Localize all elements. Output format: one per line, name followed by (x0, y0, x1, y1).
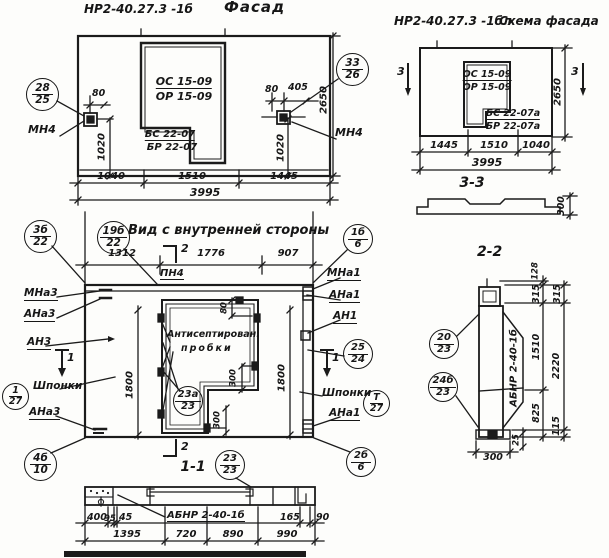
fitting-label-ana3-top: АНа3 (24, 309, 55, 322)
balloon-den: 23 (179, 402, 197, 413)
detail-balloon-25-24: 25 24 (343, 339, 373, 369)
dim-80-right: 80 (265, 85, 278, 95)
section-3-mark-right: 3 (571, 66, 579, 78)
dim-315-a: 315 (532, 284, 542, 304)
detail-balloon-1-27: 1 27 (2, 383, 29, 410)
detail-balloon-4b-10: 4б 10 (24, 448, 57, 481)
fitting-label-an1: АН1 (333, 311, 357, 324)
plugs-note-line2: пробки (181, 344, 233, 354)
balloon-num: 20 (434, 333, 454, 345)
dim-95: 95 (104, 515, 116, 524)
dim-128: 128 (531, 262, 540, 280)
scheme-door-mark-br: БР 22-07а (486, 122, 540, 132)
dim-1776: 1776 (197, 248, 225, 259)
detail-balloon-19b-22: 19б 22 (97, 221, 130, 254)
section-2-2-title: 2-2 (477, 245, 502, 260)
dim-90: 90 (316, 513, 329, 523)
scheme-code: НР2-40.27.3 -1бл (394, 15, 512, 28)
section-1-mark-right: 1 (332, 352, 340, 364)
dim-300-scheme: 300 (557, 196, 567, 216)
dim-1040: 1040 (97, 171, 125, 182)
dim-720: 720 (176, 529, 197, 540)
dim-405: 405 (288, 83, 308, 93)
balloon-num: 23 (220, 454, 240, 466)
dim-990: 990 (277, 529, 298, 540)
dim-825: 825 (532, 403, 542, 423)
detail-balloon-3b-8: 3б 22 (24, 220, 57, 253)
dim-1020-left: 1020 (97, 133, 108, 161)
balloon-den: 27 (7, 397, 24, 407)
panel-mark-abnr-11: АБНР 2-40-1б (167, 510, 245, 522)
dim-1445: 1445 (270, 171, 298, 182)
scheme-door-mark-bs: БС 22-07а (486, 109, 540, 120)
detail-balloon-2b-6: 2б 6 (346, 447, 376, 477)
balloon-den: 22 (104, 238, 123, 249)
dim-25: 25 (512, 434, 521, 446)
dim-2650-scheme: 2650 (553, 78, 564, 106)
dim-45: 45 (119, 513, 132, 523)
dim-1510: 1510 (178, 171, 206, 182)
section-2-mark-bottom: 2 (181, 441, 189, 453)
facade-window-mark-os: ОС 15-09 (156, 76, 212, 89)
detail-balloon-23a-23: 23а 23 (173, 386, 203, 416)
balloon-den: 23 (221, 466, 239, 477)
detail-balloon-28-25: 28 25 (26, 78, 59, 111)
section-1-mark-left: 1 (67, 352, 75, 364)
fitting-label-ana3-bot: АНа3 (29, 407, 60, 420)
balloon-den: 23 (434, 388, 452, 399)
fitting-label-an3: АН3 (27, 337, 51, 350)
panel-drawing-sheet: НР2-40.27.3 -1б Фасад ОС 15-09 ОР 15-09 … (0, 0, 609, 558)
facade-window-mark-or: ОР 15-09 (156, 91, 212, 103)
detail-balloon-20-23: 20 23 (429, 329, 459, 359)
scheme-window-mark-or: ОР 15-09 (463, 83, 512, 93)
panel-mark-abnr-22: АБНР 2-40-1б (509, 329, 520, 407)
dim-1020-right: 1020 (276, 134, 287, 162)
dim-1800-left: 1800 (125, 371, 136, 399)
balloon-den: 23 (435, 345, 453, 356)
detail-balloon-33-26: 33 26 (336, 53, 369, 86)
facade-door-mark-bs: БС 22-07 (145, 129, 195, 141)
anchor-label-mn4-left: МН4 (28, 124, 56, 136)
section-2-mark-top: 2 (181, 243, 189, 255)
facade-code: НР2-40.27.3 -1б (84, 3, 193, 16)
keys-label-left: Шпонки (33, 381, 82, 393)
balloon-den: 22 (31, 237, 50, 248)
anchor-label-mn4-right: МН4 (335, 127, 363, 139)
dim-1445-scheme: 1445 (430, 140, 458, 151)
section-1-1-title: 1-1 (180, 460, 205, 475)
detail-balloon-23-23: 23 23 (215, 450, 245, 480)
scheme-title: Схема фасада (499, 15, 599, 28)
balloon-num: 24б (430, 376, 457, 388)
plugs-note-line1: Антисептирован. (167, 330, 260, 340)
dim-1395: 1395 (113, 529, 141, 540)
dim-3995-scheme: 3995 (472, 157, 503, 169)
inner-view-title: Вид с внутренней стороны (128, 224, 329, 238)
fitting-label-ana1-bot: АНа1 (329, 408, 360, 421)
balloon-den: 27 (368, 404, 385, 414)
dim-80-plug: 80 (220, 302, 229, 314)
dim-165: 165 (280, 513, 300, 523)
dim-2220: 2220 (552, 353, 562, 379)
channel-label-pn4: ПН4 (160, 268, 184, 280)
dim-300-plug-a: 300 (229, 369, 238, 387)
dim-1510-scheme: 1510 (480, 140, 508, 151)
balloon-num: 23а (175, 390, 202, 402)
balloon-num: 1б (348, 228, 368, 240)
detail-balloon-24b-23: 24б 23 (428, 372, 458, 402)
dim-1800-right: 1800 (277, 364, 288, 392)
scheme-window-mark-os: ОС 15-09 (463, 70, 512, 81)
detail-balloon-t-27: Т 27 (363, 390, 390, 417)
balloon-num: 2б (351, 451, 371, 463)
fitting-label-mna1: МНа1 (327, 268, 361, 281)
detail-balloon-1b-6: 1б 6 (343, 224, 373, 254)
balloon-den: 24 (349, 355, 367, 366)
dim-300-22: 300 (483, 453, 503, 463)
facade-door-mark-br: БР 22-07 (147, 142, 197, 153)
dim-315-b: 315 (553, 284, 563, 304)
dim-907: 907 (278, 248, 299, 259)
fitting-label-ana1-top: АНа1 (329, 290, 360, 303)
dim-300-plug-b: 300 (213, 411, 222, 429)
dim-1040-scheme: 1040 (522, 140, 550, 151)
section-3-mark-left: 3 (397, 66, 405, 78)
balloon-den: 6 (356, 463, 367, 474)
balloon-den: 26 (343, 70, 362, 81)
balloon-num: 25 (348, 343, 368, 355)
balloon-den: 10 (31, 465, 50, 476)
dim-80-left: 80 (92, 89, 105, 99)
balloon-den: 25 (33, 95, 52, 106)
balloon-den: 6 (353, 240, 364, 251)
dim-890: 890 (223, 529, 244, 540)
dim-2650-facade: 2650 (319, 86, 330, 114)
facade-title: Фасад (224, 0, 285, 16)
fitting-label-mna3: МНа3 (24, 288, 58, 301)
dim-1510-22: 1510 (532, 334, 542, 360)
section-3-3-title: 3-3 (459, 176, 484, 191)
dim-3995-facade: 3995 (190, 187, 221, 199)
dim-115: 115 (552, 416, 562, 436)
